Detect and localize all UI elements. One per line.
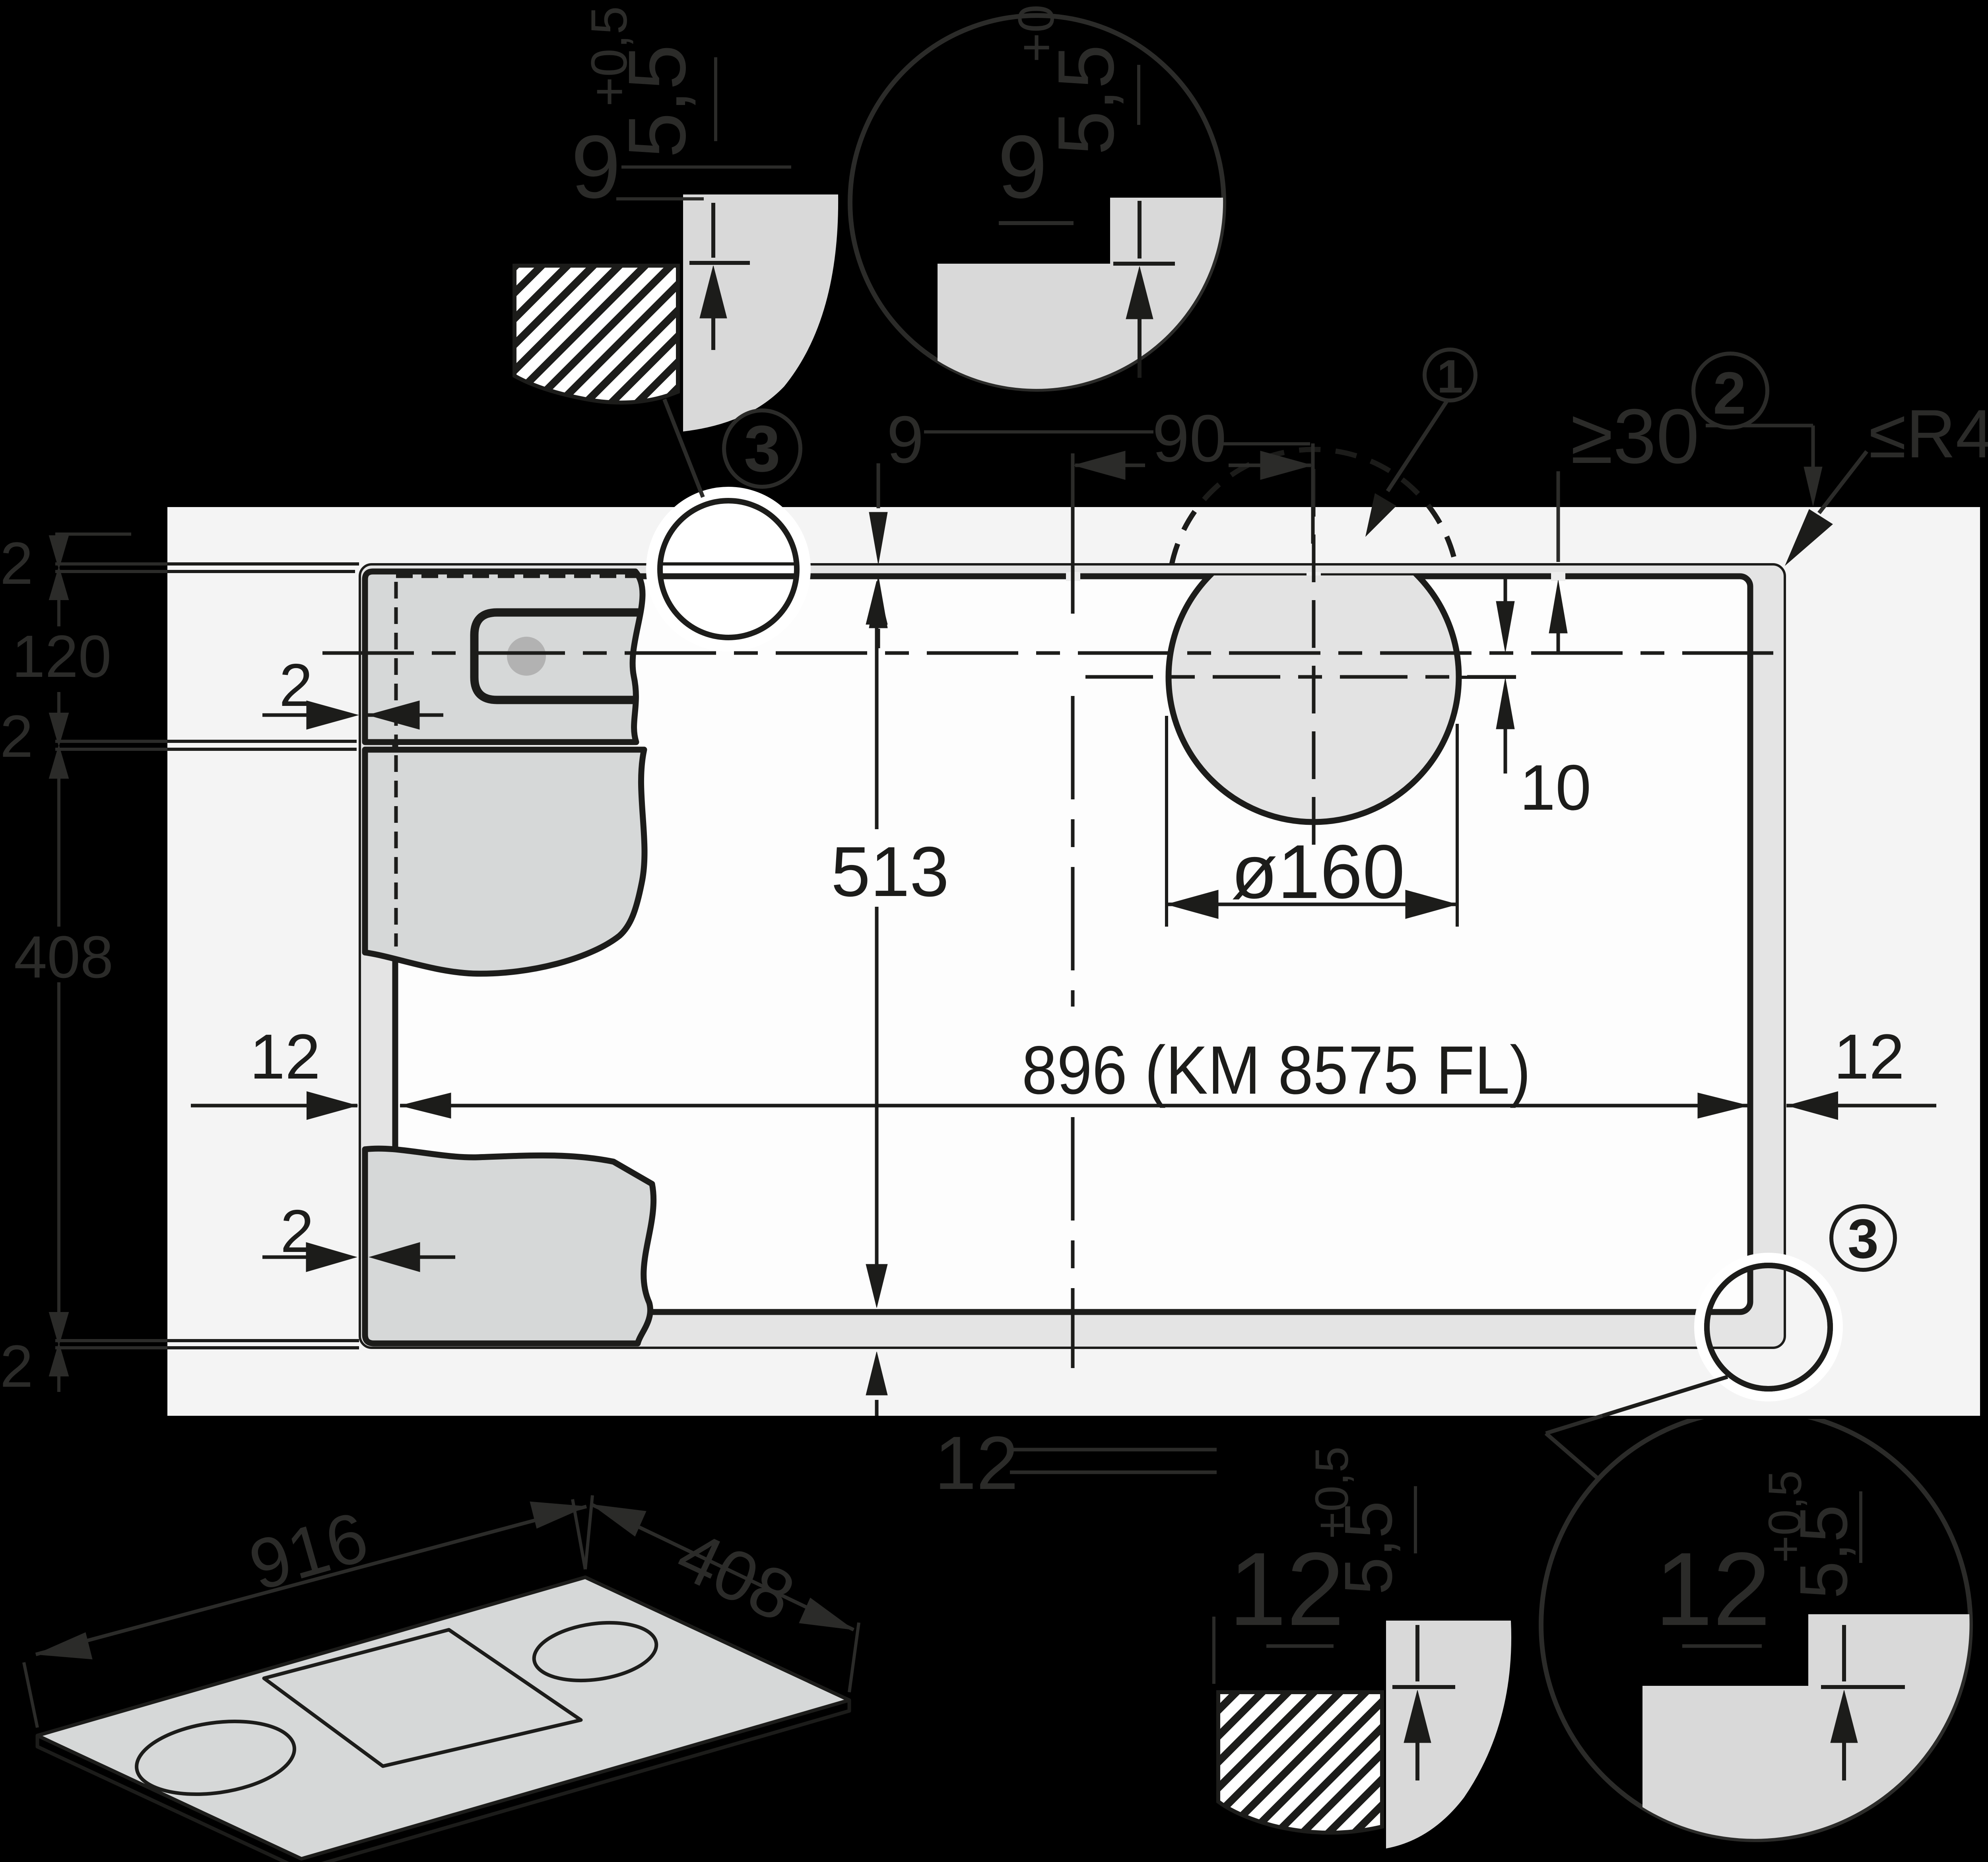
svg-text:2: 2 (280, 1197, 314, 1265)
svg-text:+0,5: +0,5 (581, 6, 638, 107)
svg-text:12: 12 (934, 1421, 1018, 1505)
svg-text:ø160: ø160 (1231, 829, 1405, 914)
svg-text:10: 10 (1520, 752, 1591, 824)
svg-text:12: 12 (1655, 1531, 1771, 1647)
svg-text:≤R4: ≤R4 (1869, 396, 1988, 472)
svg-text:1: 1 (1437, 350, 1463, 403)
svg-text:120: 120 (12, 623, 111, 690)
svg-text:2: 2 (0, 703, 33, 770)
svg-text:9: 9 (998, 117, 1047, 217)
svg-text:408: 408 (14, 923, 113, 990)
svg-text:3: 3 (1848, 1207, 1879, 1270)
svg-text:+0,5: +0,5 (1759, 1470, 1811, 1563)
svg-text:2: 2 (0, 530, 33, 597)
svg-text:3: 3 (744, 412, 780, 485)
svg-text:896 (KM 8575 FL): 896 (KM 8575 FL) (1022, 1032, 1531, 1108)
svg-text:+0,5: +0,5 (1306, 1446, 1358, 1539)
svg-text:90: 90 (1152, 401, 1227, 476)
svg-text:12: 12 (1834, 1021, 1905, 1092)
svg-text:513: 513 (831, 832, 949, 911)
svg-text:2: 2 (1713, 360, 1746, 426)
svg-text:12: 12 (250, 1021, 320, 1092)
svg-text:9: 9 (887, 402, 924, 477)
svg-text:2: 2 (279, 651, 313, 719)
svg-text:12: 12 (1229, 1531, 1344, 1647)
svg-text:2: 2 (0, 1333, 33, 1399)
svg-text:≥30: ≥30 (1571, 393, 1699, 480)
svg-text:+0,5: +0,5 (1008, 0, 1065, 62)
